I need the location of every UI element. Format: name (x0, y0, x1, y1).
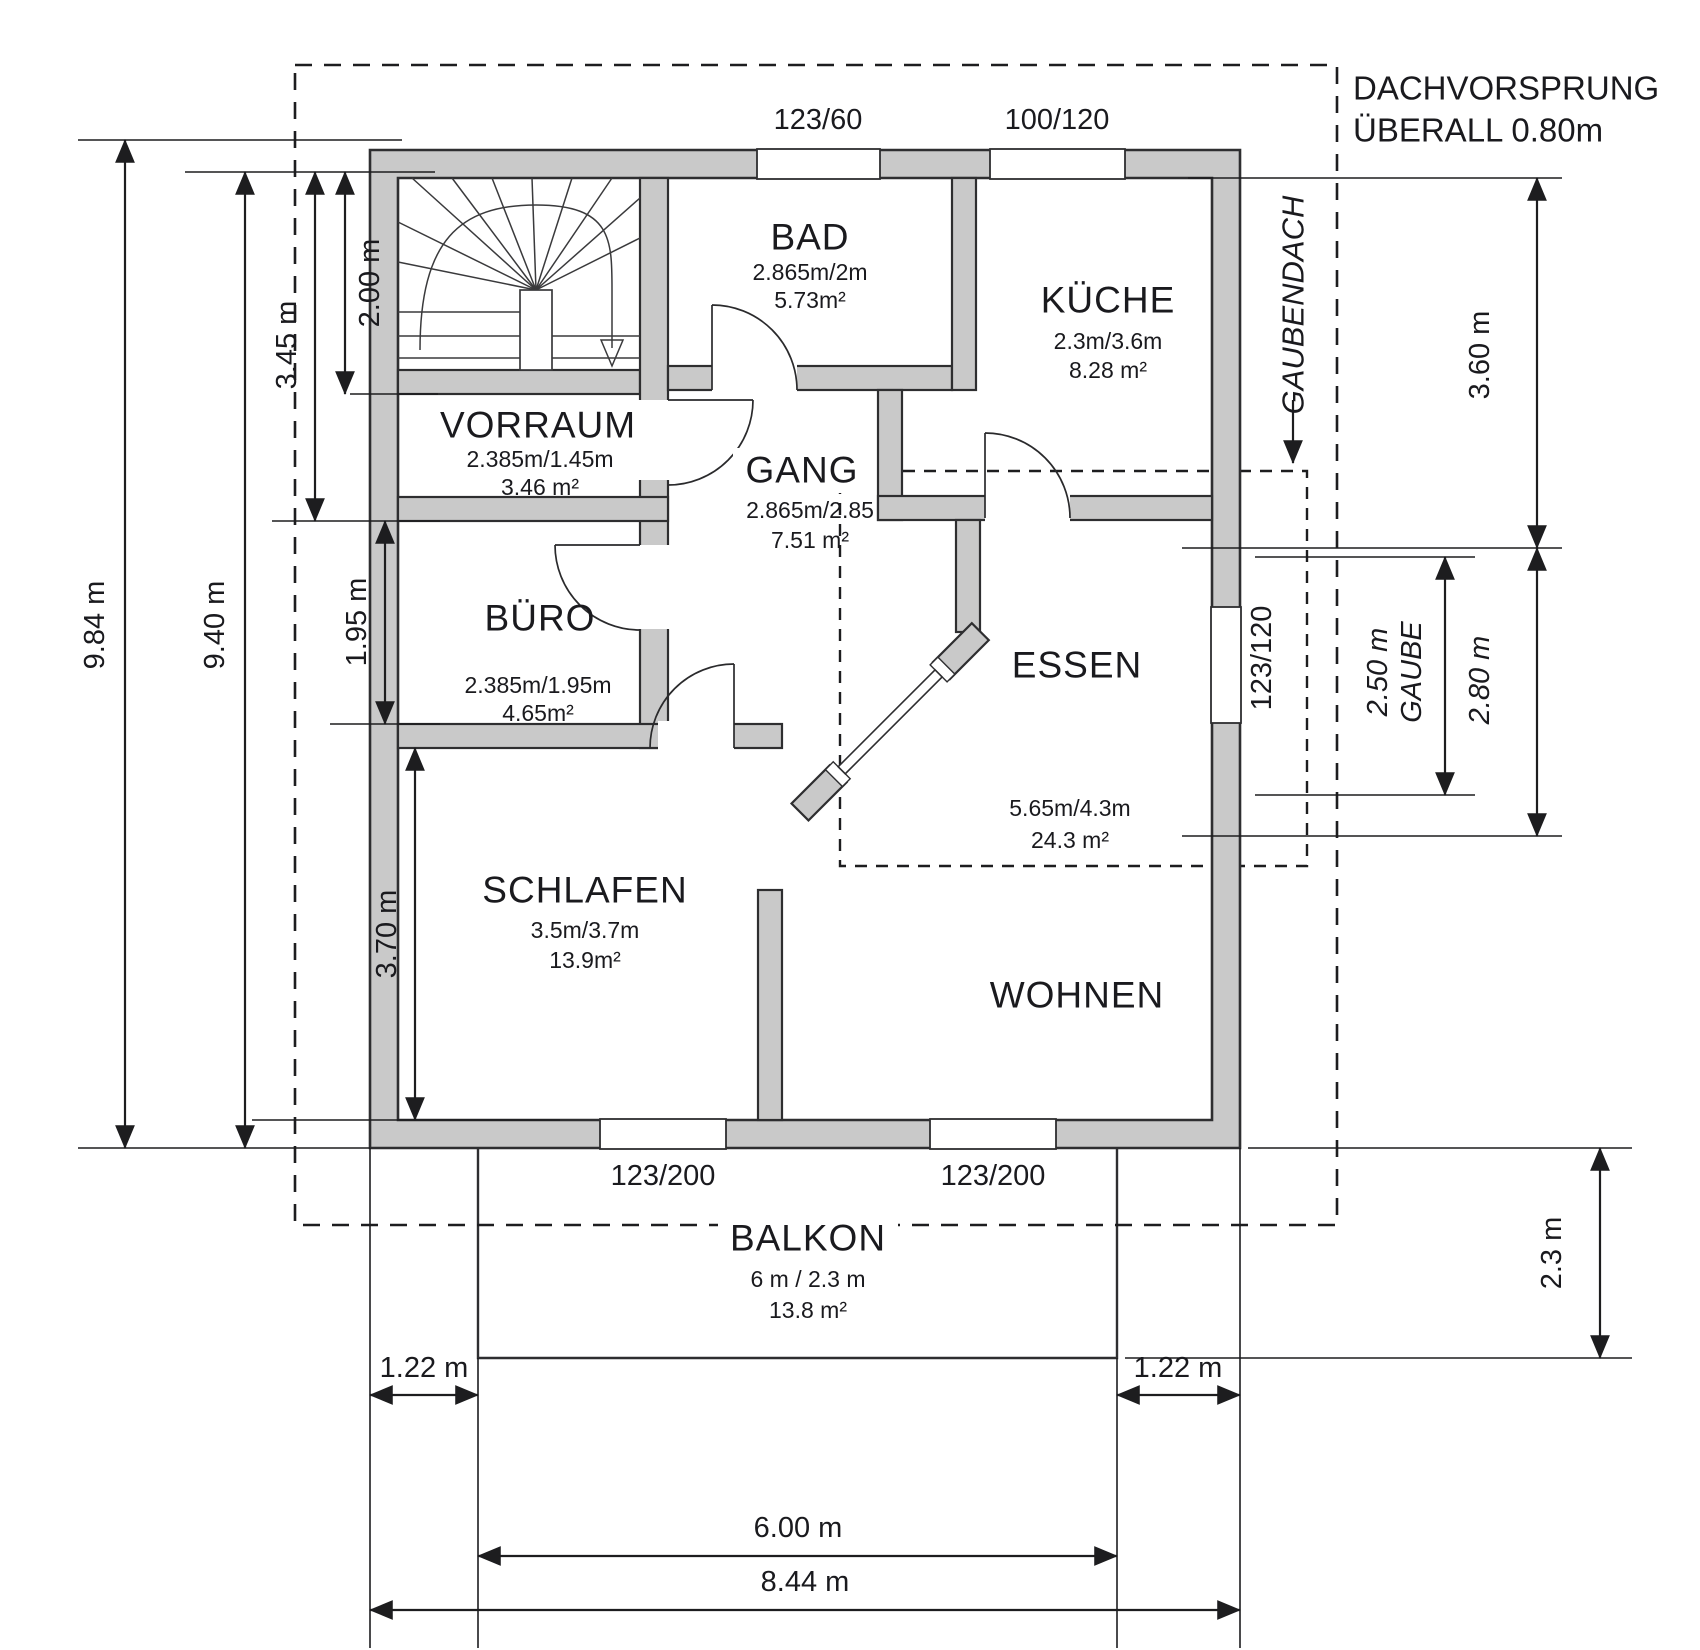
room-dims-gang: 2.865m/2.85 (746, 497, 874, 523)
window-schlafen (600, 1119, 726, 1149)
window-kueche (990, 149, 1125, 179)
room-dims-bad: 2.865m/2m (752, 259, 867, 285)
room-area-buero: 4.65m² (502, 700, 574, 726)
wall-schlafen-wohnen (758, 890, 782, 1120)
glass-door-leaf (838, 670, 942, 774)
room-label-essen: ESSEN (1012, 645, 1142, 686)
roof-note-line1: DACHVORSPRUNG (1353, 70, 1659, 107)
roof-note-line2: ÜBERALL 0.80m (1353, 112, 1603, 149)
wall-bad-kueche (952, 178, 976, 390)
window-label-essen: 123/120 (1246, 606, 1278, 711)
room-label-schlafen: SCHLAFEN (482, 870, 687, 911)
stair-newel (520, 290, 552, 370)
window-wohnen (930, 1119, 1056, 1149)
room-dims-essen: 5.65m/4.3m (1009, 795, 1130, 821)
room-label-vorraum: VORRAUM (440, 405, 636, 446)
room-dims-kueche: 2.3m/3.6m (1054, 328, 1163, 354)
dim-label-3-60: 3.60 m (1464, 311, 1496, 400)
room-dims-buero: 2.385m/1.95m (464, 672, 611, 698)
window-label-kueche: 100/120 (1005, 104, 1110, 136)
room-area-gang: 7.51 m² (771, 527, 849, 553)
dim-label-9-40: 9.40 m (199, 581, 231, 670)
wall-gang-essen (956, 520, 980, 632)
dim-label-2-80: 2.80 m (1464, 636, 1496, 726)
window-bad (757, 149, 880, 179)
dim-label-3-45: 3.45 m (271, 301, 303, 390)
dim-label-3-70: 3.70 m (371, 890, 403, 979)
dim-label-9-84: 9.84 m (79, 581, 111, 670)
room-area-essen: 24.3 m² (1031, 827, 1109, 853)
staircase (398, 178, 640, 370)
dim-label-8-44: 8.44 m (761, 1566, 850, 1598)
dim-label-2-50: 2.50 m (1362, 628, 1394, 718)
room-area-schlafen: 13.9m² (549, 947, 621, 973)
room-dims-vorraum: 2.385m/1.45m (466, 446, 613, 472)
room-area-vorraum: 3.46 m² (501, 474, 579, 500)
dim-label-1-95: 1.95 m (341, 578, 373, 667)
room-label-gang: GANG (746, 450, 859, 491)
dim-label-1-22-left: 1.22 m (380, 1352, 469, 1384)
wall-stair-bottom (398, 370, 640, 394)
window-label-schlafen: 123/200 (611, 1160, 716, 1192)
window-label-wohnen: 123/200 (941, 1160, 1046, 1192)
room-area-bad: 5.73m² (774, 287, 846, 313)
room-label-kueche: KÜCHE (1041, 280, 1176, 321)
dim-label-6-00: 6.00 m (754, 1512, 843, 1544)
room-area-balkon: 13.8 m² (769, 1297, 847, 1323)
wall-bad-gang (668, 366, 952, 390)
diagonal-wall (792, 623, 989, 820)
window-label-bad: 123/60 (774, 104, 863, 136)
room-label-bad: BAD (770, 217, 849, 258)
room-dims-schlafen: 3.5m/3.7m (531, 917, 640, 943)
room-label-balkon: BALKON (730, 1218, 886, 1259)
dim-label-2-3: 2.3 m (1536, 1217, 1568, 1290)
dim-label-1-22-right: 1.22 m (1134, 1352, 1223, 1384)
room-label-wohnen: WOHNEN (990, 975, 1165, 1016)
room-area-kueche: 8.28 m² (1069, 357, 1147, 383)
wall-vorraum-buero (398, 497, 668, 521)
room-dims-balkon: 6 m / 2.3 m (750, 1266, 865, 1292)
room-label-buero: BÜRO (485, 598, 596, 639)
dim-label-2-00: 2.00 m (354, 239, 386, 328)
dimension-lines (125, 140, 1600, 1610)
floor-plan-page: DACHVORSPRUNG ÜBERALL 0.80m 123/60 100/1… (0, 0, 1700, 1650)
stair-walkline (420, 205, 612, 350)
door-openings (637, 363, 1070, 751)
floor-plan-drawing: DACHVORSPRUNG ÜBERALL 0.80m 123/60 100/1… (0, 0, 1700, 1650)
gaubendach-label: GAUBENDACH (1276, 195, 1311, 414)
window-essen (1211, 607, 1241, 723)
dim-label-gaube: GAUBE (1396, 621, 1428, 723)
